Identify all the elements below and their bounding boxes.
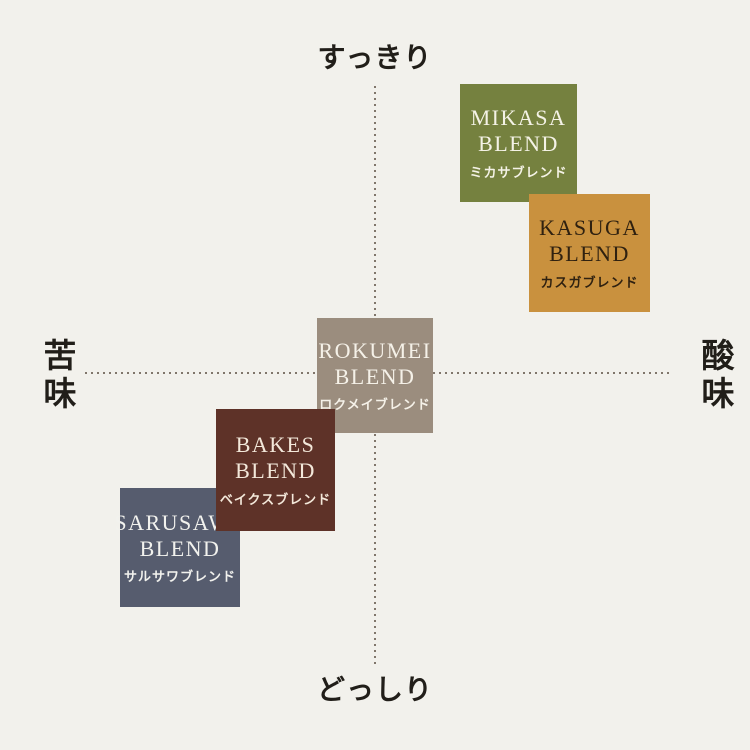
taste-map-chart: すっきり どっしり 苦味 酸味 MIKASABLENDミカサブレンドKASUGA… <box>0 0 750 750</box>
axis-label-top: すっきり <box>318 36 433 76</box>
blend-name-en-line2: BLEND <box>235 458 316 484</box>
axis-label-left: 苦味 <box>33 338 81 414</box>
blend-name-en-line2: BLEND <box>335 364 416 390</box>
blend-name-ja: サルサワブレンド <box>124 566 236 585</box>
blend-name-ja: ロクメイブレンド <box>319 394 430 413</box>
blend-name-en-line1: ROKUMEI <box>318 338 431 364</box>
blend-block-kasuga: KASUGABLENDカスガブレンド <box>529 194 650 312</box>
blend-name-en-line2: BLEND <box>140 536 221 562</box>
blend-block-mikasa: MIKASABLENDミカサブレンド <box>460 84 577 202</box>
blend-name-en-line1: KASUGA <box>539 215 640 241</box>
blend-name-en-line2: BLEND <box>478 131 559 157</box>
blend-name-ja: ベイクスブレンド <box>220 489 331 508</box>
blend-name-en-line1: BAKES <box>236 432 316 458</box>
blend-name-ja: カスガブレンド <box>540 272 638 291</box>
blend-name-en-line1: MIKASA <box>471 105 567 131</box>
axis-label-right: 酸味 <box>691 338 739 414</box>
blend-name-en-line2: BLEND <box>549 241 630 267</box>
axis-label-bottom: どっしり <box>317 668 433 708</box>
blend-block-bakes: BAKESBLENDベイクスブレンド <box>216 409 335 531</box>
blend-name-ja: ミカサブレンド <box>469 162 567 181</box>
